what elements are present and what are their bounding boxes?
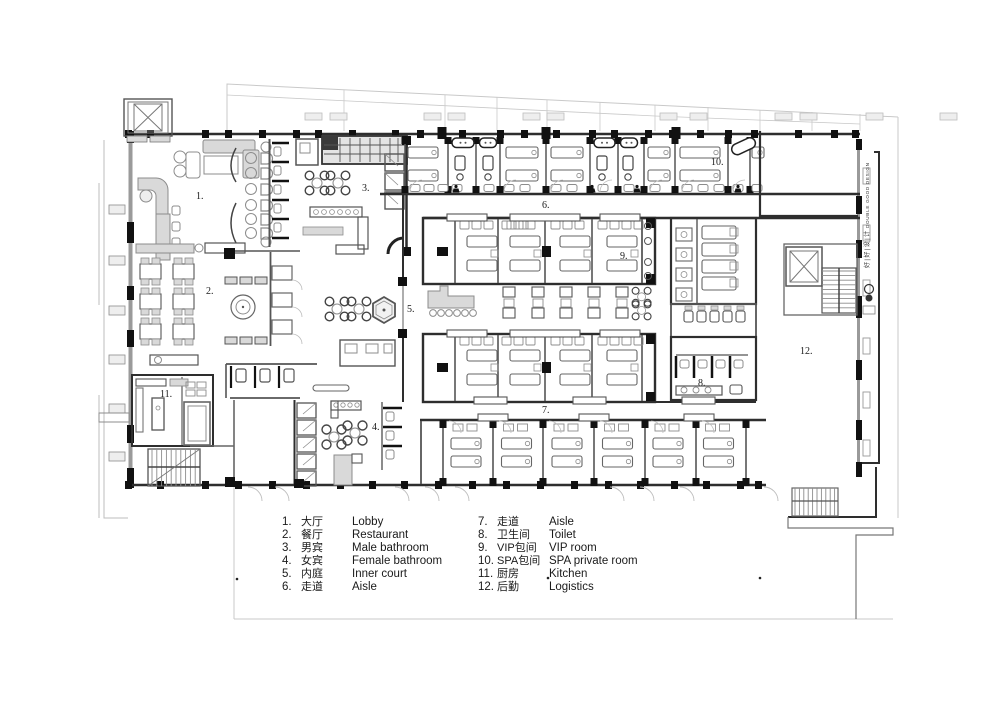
svg-text:厨房: 厨房 <box>497 567 519 580</box>
svg-text:走道: 走道 <box>301 579 323 593</box>
svg-text:Aisle: Aisle <box>352 581 377 593</box>
svg-text:7.: 7. <box>542 405 550 416</box>
svg-text:卫生间: 卫生间 <box>497 527 530 541</box>
svg-text:Restaurant: Restaurant <box>352 529 409 541</box>
svg-text:9.: 9. <box>478 542 488 554</box>
svg-text:大厅: 大厅 <box>301 514 323 528</box>
svg-text:4.: 4. <box>372 422 380 433</box>
svg-text:5.: 5. <box>282 568 292 580</box>
svg-text:Female bathroom: Female bathroom <box>352 555 442 567</box>
svg-text:餐厅: 餐厅 <box>301 527 323 541</box>
svg-text:Male bathroom: Male bathroom <box>352 542 429 554</box>
svg-text:SPA private room: SPA private room <box>549 555 638 567</box>
svg-text:10.: 10. <box>711 157 724 168</box>
svg-text:DOUBLE GOOD DESIGN: DOUBLE GOOD DESIGN <box>865 162 870 228</box>
svg-text:Toilet: Toilet <box>549 529 577 541</box>
svg-text:好|好|设|计: 好|好|设|计 <box>863 230 871 268</box>
svg-text:Logistics: Logistics <box>549 581 594 593</box>
svg-text:12.: 12. <box>800 346 813 357</box>
svg-text:11.: 11. <box>478 568 493 580</box>
svg-text:女宾: 女宾 <box>301 553 323 567</box>
svg-text:8.: 8. <box>698 378 706 389</box>
svg-text:3.: 3. <box>282 542 292 554</box>
svg-text:4.: 4. <box>282 555 292 567</box>
svg-text:6.: 6. <box>542 200 550 211</box>
svg-text:VIP包间: VIP包间 <box>497 541 537 554</box>
svg-text:SPA包间: SPA包间 <box>497 554 540 567</box>
svg-text:2.: 2. <box>206 286 214 297</box>
svg-text:内庭: 内庭 <box>301 566 323 580</box>
svg-text:10.: 10. <box>478 555 494 567</box>
svg-text:12.: 12. <box>478 581 494 593</box>
svg-text:男宾: 男宾 <box>301 540 323 554</box>
svg-text:8.: 8. <box>478 529 488 541</box>
svg-text:1.: 1. <box>196 191 204 202</box>
svg-text:2.: 2. <box>282 529 292 541</box>
svg-text:1.: 1. <box>282 516 292 528</box>
svg-text:6.: 6. <box>282 581 292 593</box>
svg-text:后勤: 后勤 <box>497 580 519 593</box>
svg-text:Lobby: Lobby <box>352 516 384 528</box>
svg-text:Aisle: Aisle <box>549 516 574 528</box>
svg-text:7.: 7. <box>478 516 488 528</box>
svg-text:Inner court: Inner court <box>352 568 408 580</box>
svg-text:3.: 3. <box>362 183 370 194</box>
svg-text:VIP room: VIP room <box>549 542 597 554</box>
svg-text:走道: 走道 <box>497 514 519 528</box>
svg-text:5.: 5. <box>407 304 415 315</box>
svg-text:Kitchen: Kitchen <box>549 568 587 580</box>
